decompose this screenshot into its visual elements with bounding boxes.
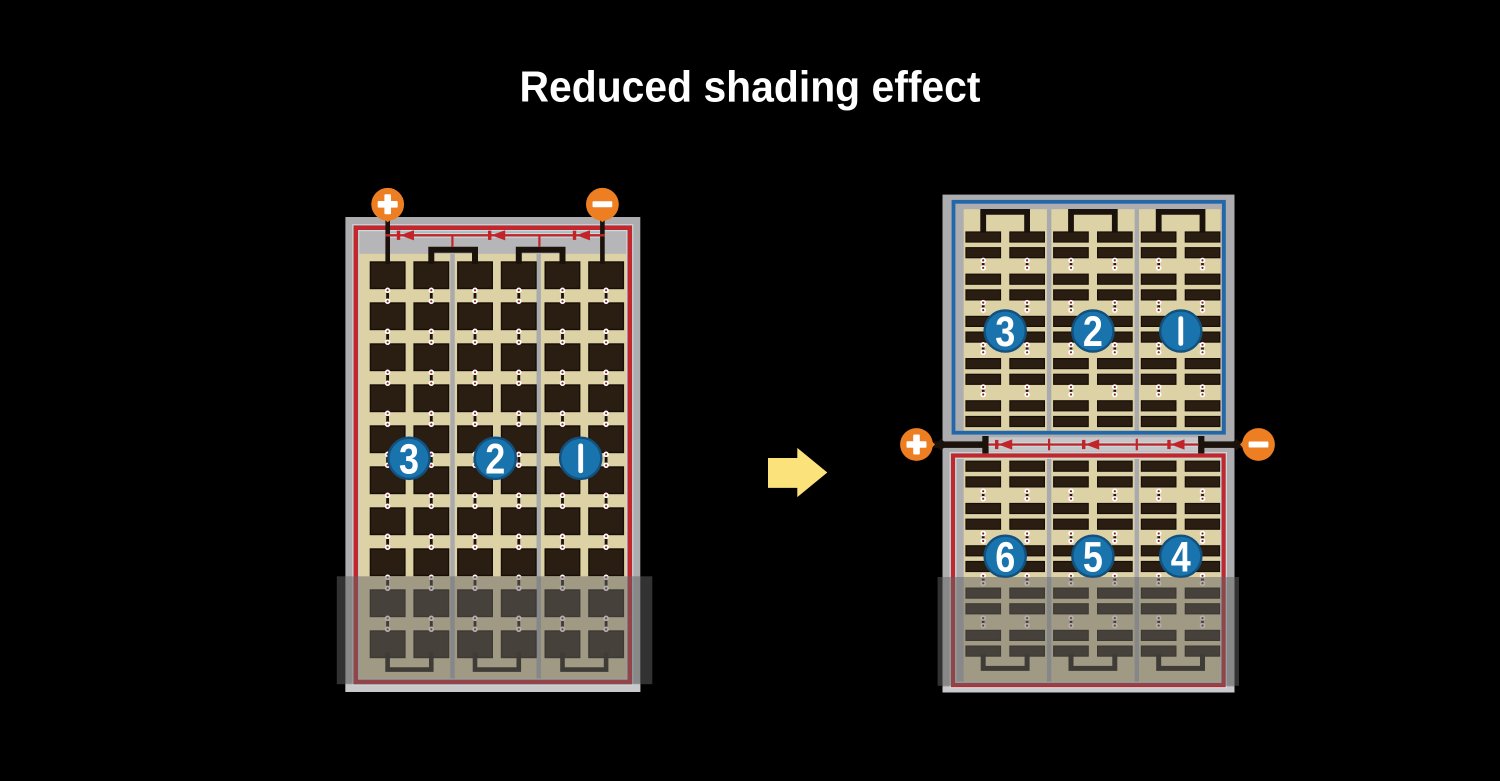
svg-text:2: 2 xyxy=(485,435,505,483)
svg-text:Reduced shading effect: Reduced shading effect xyxy=(520,64,981,112)
svg-text:3: 3 xyxy=(995,308,1015,356)
svg-text:3: 3 xyxy=(399,435,419,483)
svg-text:2: 2 xyxy=(1083,308,1103,356)
svg-text:4: 4 xyxy=(1171,533,1191,581)
svg-text:5: 5 xyxy=(1083,533,1103,581)
svg-text:6: 6 xyxy=(995,533,1015,581)
